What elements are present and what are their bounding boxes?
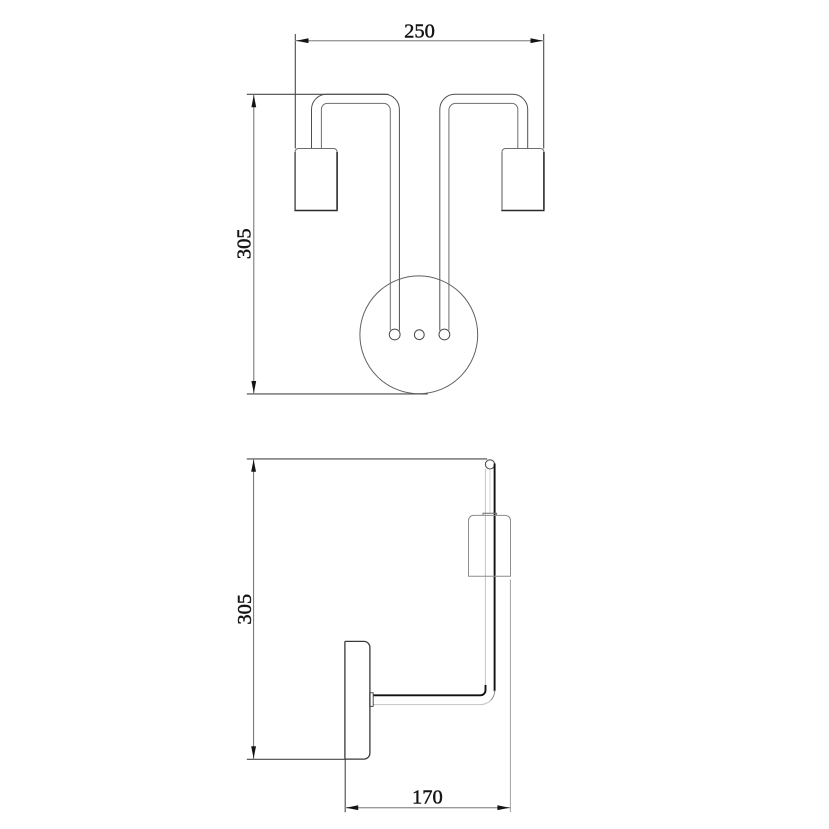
svg-text:305: 305 [234,594,256,625]
svg-text:170: 170 [412,787,443,809]
svg-text:250: 250 [404,21,435,43]
svg-text:305: 305 [234,228,256,259]
